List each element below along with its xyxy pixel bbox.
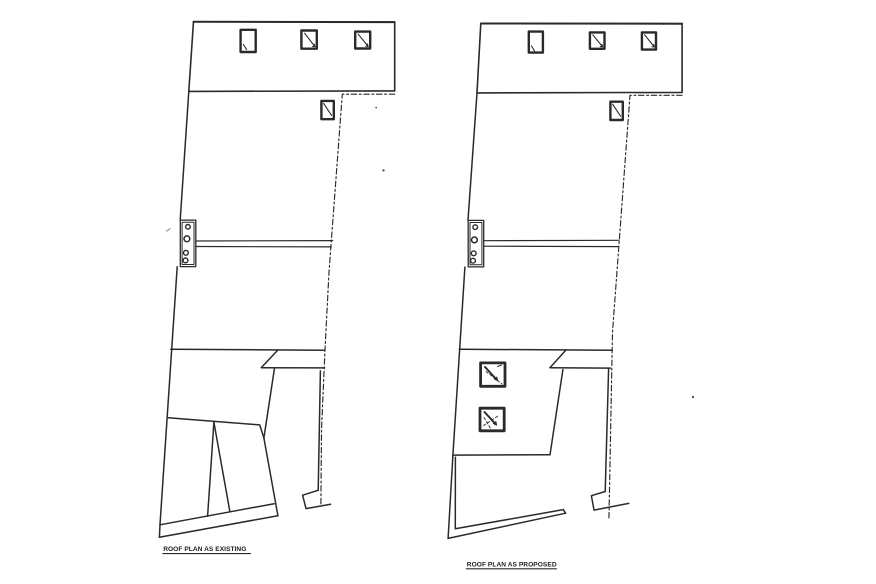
svg-text:ROOF PLAN AS EXISTING: ROOF PLAN AS EXISTING	[163, 546, 246, 553]
svg-text:ROOF PLAN AS PROPOSED: ROOF PLAN AS PROPOSED	[467, 561, 557, 568]
